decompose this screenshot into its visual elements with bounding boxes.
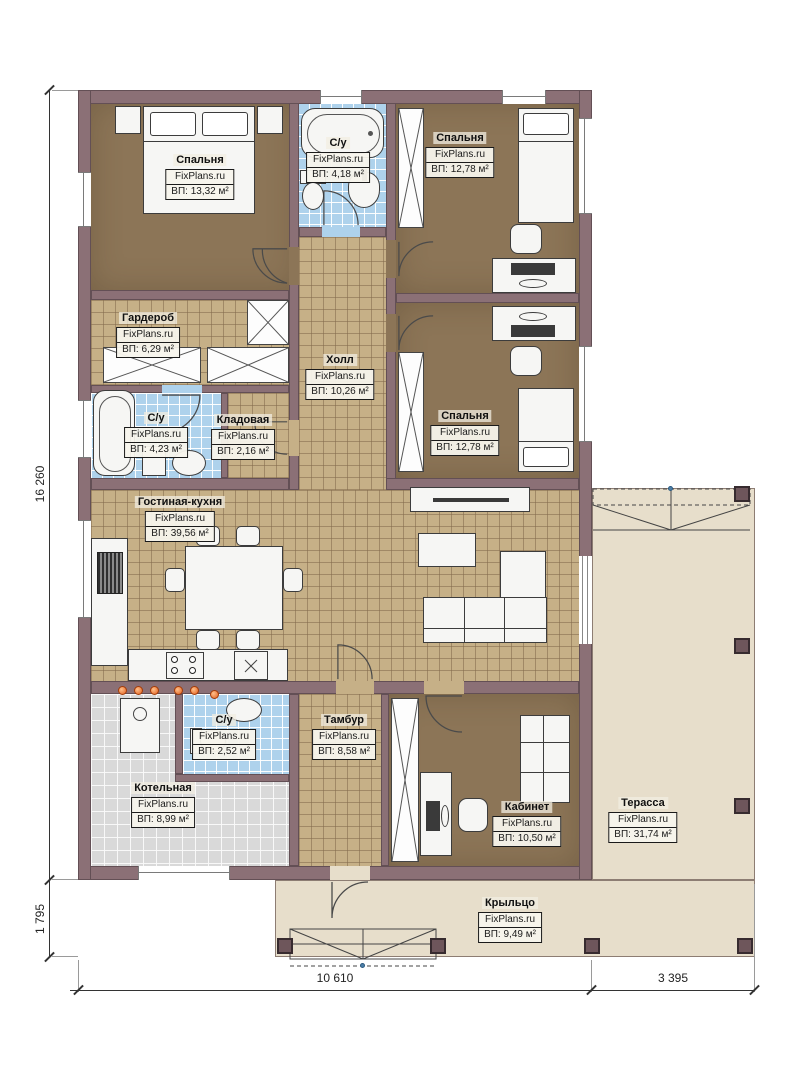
watermark: FixPlans.ru bbox=[212, 430, 274, 445]
post bbox=[734, 798, 750, 814]
room-label-wardrobe: Гардероб FixPlans.ru ВП: 6,29 м² bbox=[116, 308, 180, 358]
room-area: ВП: 9,49 м² bbox=[479, 928, 541, 942]
kitchen-sink bbox=[234, 651, 268, 680]
room-label-hall: Холл FixPlans.ru ВП: 10,26 м² bbox=[305, 350, 374, 400]
room-label-bedroom-top-right: Спальня FixPlans.ru ВП: 12,78 м² bbox=[425, 128, 494, 178]
room-name: Кладовая bbox=[214, 414, 273, 426]
tv-console bbox=[410, 487, 530, 512]
post bbox=[734, 638, 750, 654]
wall-bath-bottom-left bbox=[175, 694, 183, 774]
desk bbox=[420, 772, 452, 856]
room-label-living-kitchen: Гостиная-кухня FixPlans.ru ВП: 39,56 м² bbox=[135, 492, 225, 542]
room-name: Спальня bbox=[433, 132, 487, 144]
door-arc bbox=[330, 880, 370, 920]
chair bbox=[236, 526, 260, 546]
door-gap bbox=[386, 314, 396, 352]
room-area: ВП: 31,74 м² bbox=[609, 828, 676, 842]
heating-manifold-dot bbox=[210, 690, 219, 699]
chair bbox=[510, 224, 542, 254]
room-area: ВП: 39,56 м² bbox=[146, 527, 213, 541]
door-gap bbox=[336, 681, 374, 694]
dimension-label-house-width: 10 610 bbox=[295, 971, 375, 985]
chair bbox=[165, 568, 185, 592]
watermark: FixPlans.ru bbox=[125, 428, 187, 443]
watermark: FixPlans.ru bbox=[132, 798, 194, 813]
door-gap bbox=[424, 681, 464, 694]
door-arc bbox=[397, 314, 435, 352]
watermark: FixPlans.ru bbox=[431, 426, 498, 441]
extension-line bbox=[52, 90, 78, 91]
toilet bbox=[302, 182, 324, 210]
porch-steps bbox=[289, 928, 437, 968]
window bbox=[320, 90, 362, 104]
wall-living-bottom bbox=[91, 681, 579, 694]
room-name: Тамбур bbox=[321, 714, 367, 726]
dimension-label-porch-height: 1 795 bbox=[33, 889, 47, 949]
window bbox=[502, 90, 546, 104]
room-label-office: Кабинет FixPlans.ru ВП: 10,50 м² bbox=[492, 797, 561, 847]
laptop-icon bbox=[511, 325, 555, 337]
watermark: FixPlans.ru bbox=[426, 148, 493, 163]
room-area: ВП: 10,50 м² bbox=[493, 832, 560, 846]
watermark: FixPlans.ru bbox=[306, 370, 373, 385]
watermark: FixPlans.ru bbox=[609, 813, 676, 828]
post bbox=[277, 938, 293, 954]
room-name: Спальня bbox=[438, 410, 492, 422]
room-name: Холл bbox=[323, 354, 357, 366]
single-bed bbox=[518, 108, 574, 223]
door-gap bbox=[322, 227, 360, 237]
door-arc bbox=[424, 694, 464, 734]
post bbox=[734, 486, 750, 502]
room-area: ВП: 4,23 м² bbox=[125, 443, 187, 457]
desk bbox=[492, 258, 576, 293]
wardrobe-cabinet bbox=[391, 698, 419, 862]
floor-plan: Спальня FixPlans.ru ВП: 13,32 м² С/у Fix… bbox=[0, 0, 792, 1080]
coffee-table bbox=[418, 533, 476, 567]
chair bbox=[510, 346, 542, 376]
wall-vestibule-office bbox=[381, 694, 389, 866]
wall-living-top-left bbox=[91, 478, 289, 490]
watermark: FixPlans.ru bbox=[117, 328, 179, 343]
room-area: ВП: 10,26 м² bbox=[306, 385, 373, 399]
wardrobe-cabinet bbox=[398, 108, 424, 228]
sofa bbox=[423, 597, 547, 643]
post bbox=[584, 938, 600, 954]
dimension-label-height: 16 260 bbox=[33, 449, 47, 519]
room-label-bathroom-bottom: С/у FixPlans.ru ВП: 2,52 м² bbox=[192, 710, 256, 760]
heating-manifold-dot bbox=[150, 686, 159, 695]
extension-line bbox=[52, 956, 78, 957]
window bbox=[78, 172, 91, 227]
room-area: ВП: 12,78 м² bbox=[426, 163, 493, 177]
watermark: FixPlans.ru bbox=[313, 730, 375, 745]
terrace-sliding-door bbox=[579, 556, 592, 644]
room-name: С/у bbox=[212, 714, 235, 726]
door-gap bbox=[162, 385, 202, 393]
post bbox=[430, 938, 446, 954]
room-label-bedroom-middle-right: Спальня FixPlans.ru ВП: 12,78 м² bbox=[430, 406, 499, 456]
wall-bedroom-tl-bottom bbox=[91, 290, 289, 300]
watermark: FixPlans.ru bbox=[307, 153, 369, 168]
post bbox=[737, 938, 753, 954]
heating-manifold-dot bbox=[174, 686, 183, 695]
room-name: Котельная bbox=[131, 782, 195, 794]
extension-line bbox=[52, 879, 78, 880]
room-area: ВП: 6,29 м² bbox=[117, 343, 179, 357]
nightstand bbox=[257, 106, 283, 134]
heating-manifold-dot bbox=[134, 686, 143, 695]
chair bbox=[196, 630, 220, 650]
chair bbox=[458, 798, 488, 832]
room-name: С/у bbox=[144, 412, 167, 424]
room-label-bedroom-top-left: Спальня FixPlans.ru ВП: 13,32 м² bbox=[165, 150, 234, 200]
room-name: Крыльцо bbox=[482, 897, 538, 909]
door-arc bbox=[397, 240, 435, 278]
room-area: ВП: 8,58 м² bbox=[313, 745, 375, 759]
watermark: FixPlans.ru bbox=[493, 817, 560, 832]
door-gap bbox=[289, 420, 299, 456]
door-arc bbox=[251, 247, 289, 285]
watermark: FixPlans.ru bbox=[146, 512, 213, 527]
door-arc bbox=[336, 643, 374, 681]
wardrobe-cabinet bbox=[207, 347, 289, 383]
door-gap bbox=[330, 866, 370, 880]
boiler-unit bbox=[120, 698, 160, 753]
heating-manifold-dot bbox=[118, 686, 127, 695]
room-area: ВП: 2,16 м² bbox=[212, 445, 274, 459]
window bbox=[78, 400, 91, 458]
watermark: FixPlans.ru bbox=[166, 170, 233, 185]
pergola-beams bbox=[592, 488, 752, 534]
room-label-storage: Кладовая FixPlans.ru ВП: 2,16 м² bbox=[211, 410, 275, 460]
single-bed bbox=[518, 388, 574, 472]
wardrobe-cabinet bbox=[398, 352, 424, 472]
room-label-porch: Крыльцо FixPlans.ru ВП: 9,49 м² bbox=[478, 893, 542, 943]
extension-line bbox=[754, 884, 755, 992]
chair bbox=[283, 568, 303, 592]
tv-icon bbox=[433, 498, 509, 502]
stove bbox=[166, 652, 204, 679]
room-area: ВП: 2,52 м² bbox=[193, 745, 255, 759]
laptop-icon bbox=[511, 263, 555, 275]
room-name: Гардероб bbox=[119, 312, 177, 324]
survey-point bbox=[668, 486, 673, 491]
watermark: FixPlans.ru bbox=[479, 913, 541, 928]
room-name: Гостиная-кухня bbox=[135, 496, 225, 508]
room-label-terrace: Терасса FixPlans.ru ВП: 31,74 м² bbox=[608, 793, 677, 843]
room-area: ВП: 8,99 м² bbox=[132, 813, 194, 827]
room-area: ВП: 13,32 м² bbox=[166, 185, 233, 199]
desk bbox=[492, 306, 576, 341]
window bbox=[579, 118, 592, 214]
chair bbox=[236, 630, 260, 650]
room-area: ВП: 4,18 м² bbox=[307, 168, 369, 182]
room-label-vestibule: Тамбур FixPlans.ru ВП: 8,58 м² bbox=[312, 710, 376, 760]
wall-boiler-vestibule bbox=[289, 694, 299, 866]
nightstand bbox=[115, 106, 141, 134]
room-name: Терасса bbox=[618, 797, 668, 809]
dimension-line-width bbox=[70, 990, 755, 991]
room-name: Спальня bbox=[173, 154, 227, 166]
window bbox=[78, 520, 91, 618]
room-label-bathroom-middle: С/у FixPlans.ru ВП: 4,23 м² bbox=[124, 408, 188, 458]
window bbox=[579, 346, 592, 442]
survey-point bbox=[360, 963, 365, 968]
room-area: ВП: 12,78 м² bbox=[431, 441, 498, 455]
room-label-boiler-room: Котельная FixPlans.ru ВП: 8,99 м² bbox=[131, 778, 195, 828]
room-label-bathroom-top: С/у FixPlans.ru ВП: 4,18 м² bbox=[306, 133, 370, 183]
fridge bbox=[97, 552, 123, 594]
watermark: FixPlans.ru bbox=[193, 730, 255, 745]
dining-table bbox=[185, 546, 283, 630]
room-name: С/у bbox=[326, 137, 349, 149]
wardrobe-cabinet bbox=[247, 300, 289, 345]
door-gap bbox=[289, 247, 299, 285]
dimension-label-terrace-width: 3 395 bbox=[633, 971, 713, 985]
heating-manifold-dot bbox=[190, 686, 199, 695]
laptop-icon bbox=[426, 801, 440, 831]
door-gap bbox=[386, 240, 396, 278]
window bbox=[138, 866, 230, 880]
wall-bedrooms-right-divider bbox=[396, 293, 579, 303]
room-name: Кабинет bbox=[502, 801, 553, 813]
dimension-line-height bbox=[49, 90, 50, 957]
wall-hall-right bbox=[386, 103, 396, 490]
single-bed bbox=[520, 715, 570, 803]
